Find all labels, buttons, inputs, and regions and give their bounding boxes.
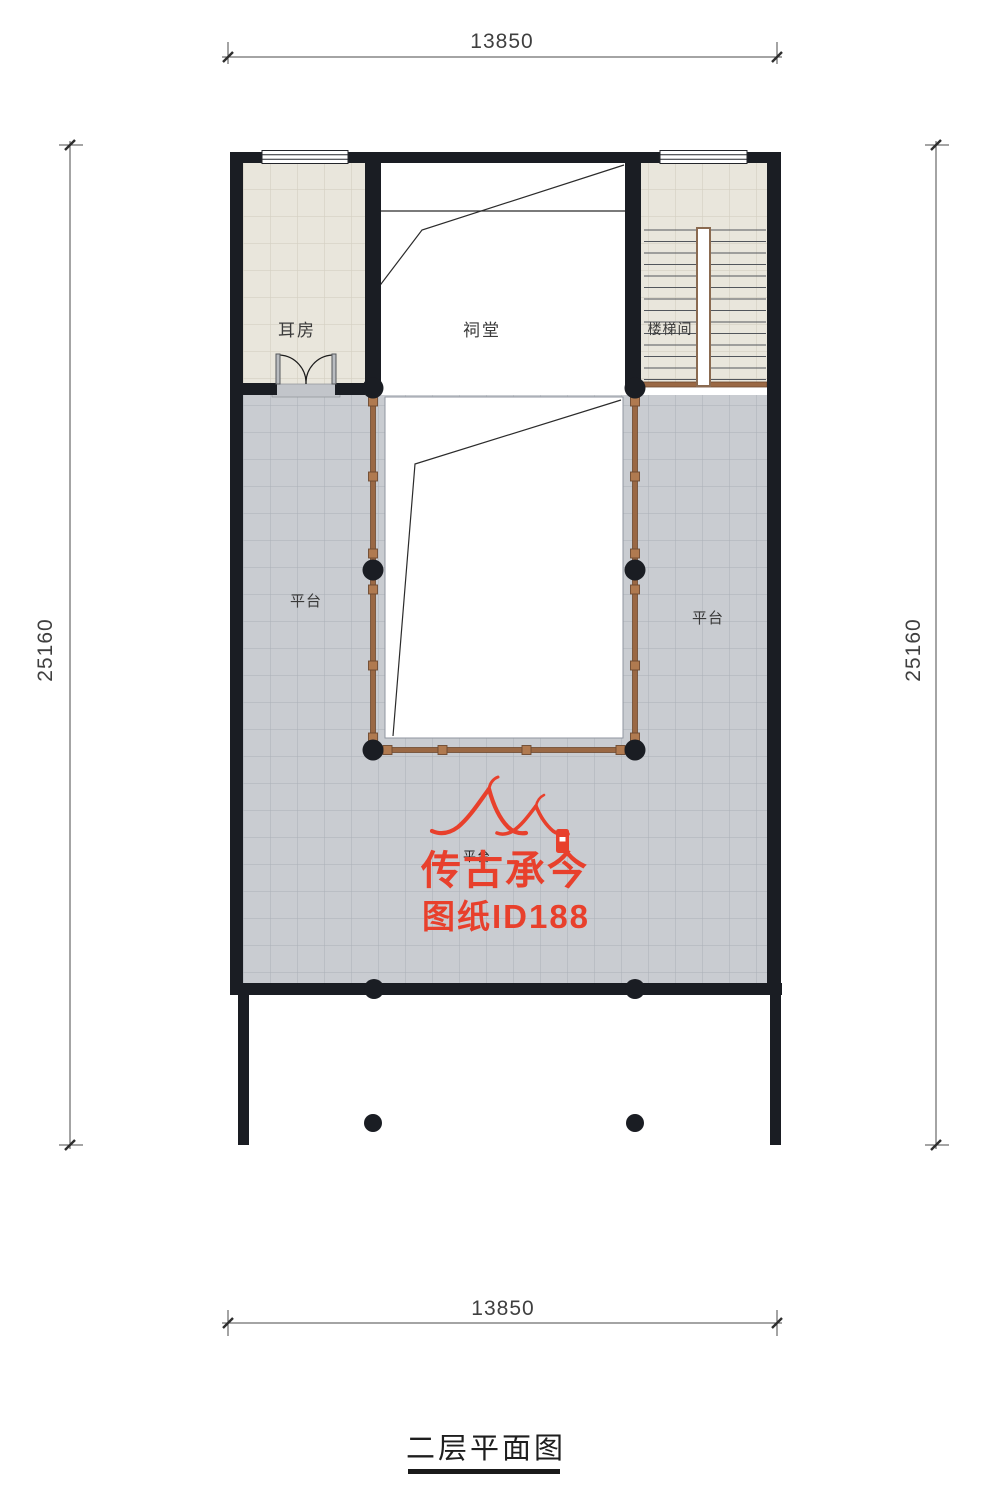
window-stairwell bbox=[660, 151, 747, 164]
door-threshold bbox=[272, 384, 340, 397]
void-floor-opening bbox=[385, 397, 623, 738]
window-erfang bbox=[262, 151, 348, 164]
dimension-top: 13850 bbox=[222, 30, 782, 64]
column bbox=[625, 560, 646, 581]
label-erfang: 耳房 bbox=[278, 321, 316, 340]
citang-roof-projection-line bbox=[378, 165, 624, 288]
dim-bottom-value: 13850 bbox=[471, 1297, 534, 1320]
title-underline bbox=[408, 1469, 560, 1474]
wall-erfang-south-right bbox=[335, 383, 365, 395]
void-opening bbox=[385, 397, 623, 738]
door-leaf-left bbox=[276, 354, 280, 384]
dim-top-value: 13850 bbox=[470, 30, 533, 53]
dimension-left: 25160 bbox=[34, 140, 83, 1150]
floor-plan-page: 耳房 祠堂 楼梯间 平台 平台 平台 传古承今 图纸ID188 13850 bbox=[0, 0, 1000, 1499]
wall-lower-west bbox=[238, 995, 249, 1145]
label-citang: 祠堂 bbox=[463, 321, 501, 340]
floor-plan-canvas: 耳房 祠堂 楼梯间 平台 平台 平台 传古承今 图纸ID188 13850 bbox=[0, 0, 1000, 1499]
label-pingtai-left: 平台 bbox=[290, 593, 322, 610]
column bbox=[363, 560, 384, 581]
column bbox=[625, 740, 646, 761]
dim-right-value: 25160 bbox=[902, 618, 925, 681]
wall-east bbox=[767, 152, 781, 995]
wall-west bbox=[230, 152, 243, 995]
title-block: 二层平面图 bbox=[406, 1433, 566, 1474]
dimension-right: 25160 bbox=[902, 140, 949, 1150]
watermark-brand: 传古承今 bbox=[420, 849, 589, 893]
column bbox=[625, 378, 646, 399]
label-pingtai-right: 平台 bbox=[692, 610, 724, 627]
erfang-floor bbox=[243, 163, 365, 385]
wall-lower-east bbox=[770, 995, 781, 1145]
railing-bottom bbox=[373, 748, 635, 753]
column bbox=[625, 979, 645, 999]
dimension-bottom: 13850 bbox=[222, 1297, 782, 1336]
column bbox=[363, 740, 384, 761]
drawing-title: 二层平面图 bbox=[406, 1433, 566, 1465]
label-loutijian: 楼梯间 bbox=[648, 321, 693, 337]
wall-platform-south bbox=[238, 983, 782, 995]
column bbox=[626, 1114, 644, 1132]
citang-ceiling-lines bbox=[378, 165, 625, 288]
dim-left-value: 25160 bbox=[34, 618, 57, 681]
watermark-sheet-id: 图纸ID188 bbox=[422, 898, 590, 935]
column bbox=[364, 1114, 382, 1132]
wall-erfang-south-left bbox=[230, 383, 277, 395]
stair-divider bbox=[697, 228, 710, 386]
wall-citang-stairwell bbox=[625, 152, 641, 390]
column bbox=[364, 979, 384, 999]
wall-erfang-citang bbox=[365, 152, 381, 390]
door-leaf-right bbox=[332, 354, 336, 384]
column bbox=[363, 378, 384, 399]
